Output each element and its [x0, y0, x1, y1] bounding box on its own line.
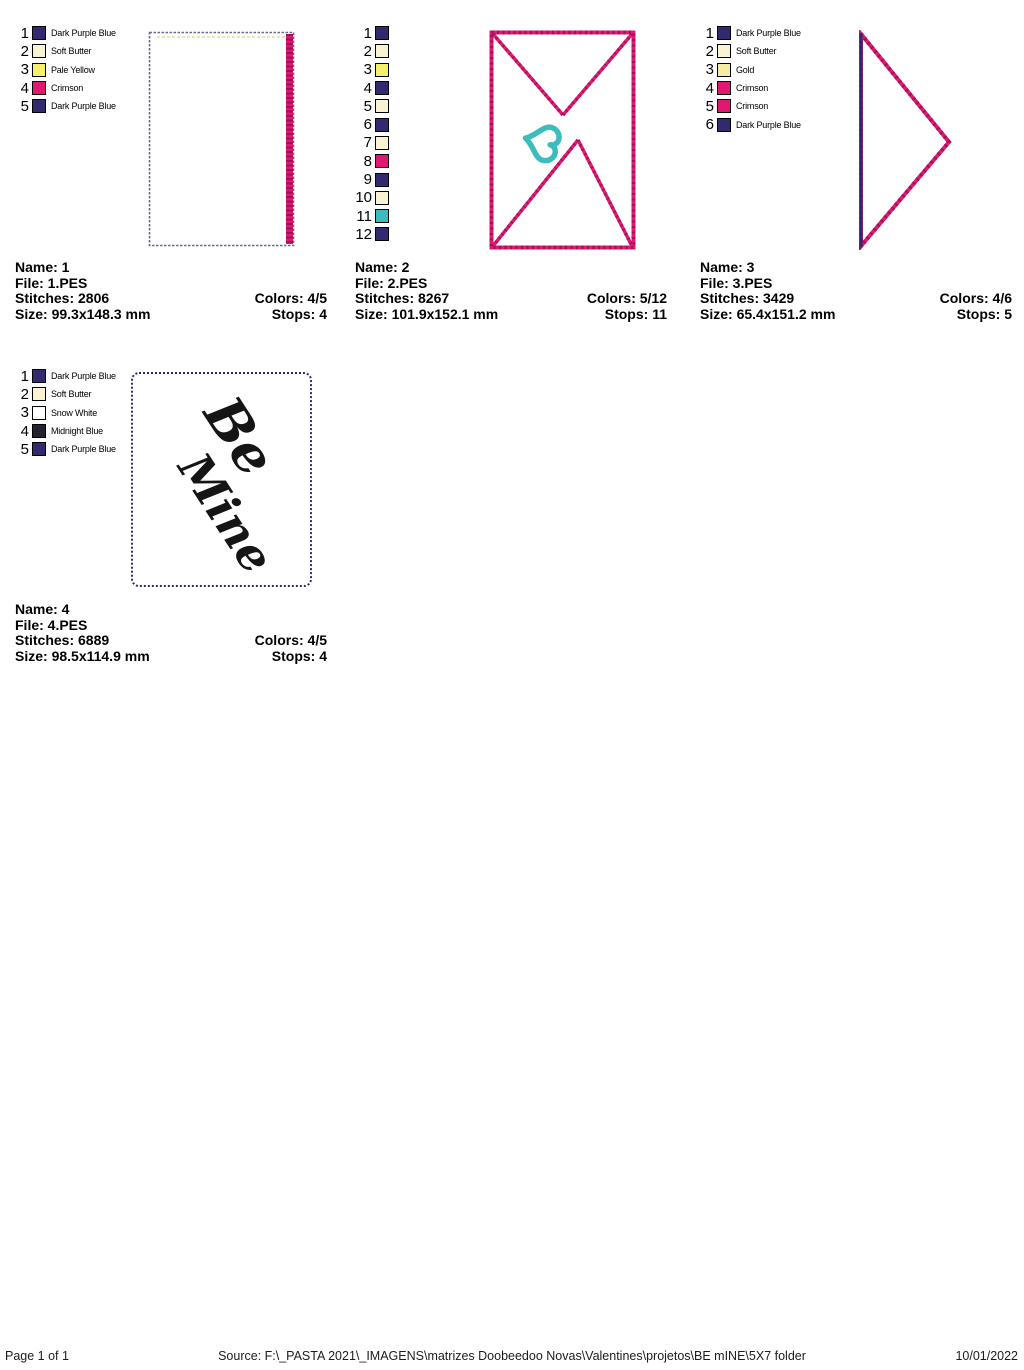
thread-number: 5: [12, 99, 29, 114]
thread-number: 9: [348, 172, 372, 187]
thread-number: 8: [348, 154, 372, 169]
catalog-sheet: 1 Dark Purple Blue 2 Soft Butter 3 Pale …: [0, 0, 1024, 1370]
thread-color-swatch: [32, 387, 46, 401]
design-colors: Colors: 4/5: [255, 633, 327, 649]
thread-color-swatch: [32, 26, 46, 40]
thread-row: 1 Dark Purple Blue: [697, 24, 801, 42]
thread-color-swatch: [375, 44, 389, 58]
thread-number: 4: [12, 81, 29, 96]
thread-color-name: Soft Butter: [51, 46, 91, 56]
thread-number: 2: [12, 44, 29, 59]
thread-row: 4 Midnight Blue: [12, 422, 116, 440]
design-stitches: Stitches: 6889: [15, 633, 109, 649]
thread-color-name: Dark Purple Blue: [51, 444, 116, 454]
thread-color-swatch: [717, 81, 731, 95]
envelope-outline-stitches: [492, 33, 634, 248]
thread-color-name: Dark Purple Blue: [736, 28, 801, 38]
design-1-preview: [148, 31, 296, 248]
thread-row: 4 Crimson: [12, 79, 116, 97]
thread-row: 5 Crimson: [697, 97, 801, 115]
thread-row: 1 Dark Purple Blue: [12, 367, 116, 385]
thread-number: 3: [12, 405, 29, 420]
thread-number: 5: [348, 99, 372, 114]
design-stops: Stops: 4: [272, 649, 327, 665]
thread-color-name: Crimson: [736, 83, 768, 93]
thread-row: 4: [348, 79, 394, 97]
thread-color-swatch: [375, 63, 389, 77]
design-file: File: 1.PES: [15, 276, 327, 292]
thread-color-swatch: [375, 99, 389, 113]
thread-row: 4 Crimson: [697, 79, 801, 97]
design-stops: Stops: 5: [957, 307, 1012, 323]
design-file: File: 3.PES: [700, 276, 1012, 292]
thread-color-swatch: [375, 154, 389, 168]
design-2-info: Name: 2 File: 2.PES Stitches: 8267 Color…: [355, 260, 667, 323]
thread-number: 4: [697, 81, 714, 96]
thread-row: 9: [348, 170, 394, 188]
thread-row: 10: [348, 189, 394, 207]
thread-number: 12: [348, 227, 372, 242]
thread-number: 7: [348, 135, 372, 150]
design-3-thread-legend: 1 Dark Purple Blue 2 Soft Butter 3 Gold …: [697, 24, 801, 134]
thread-row: 3: [348, 61, 394, 79]
design-1-thread-legend: 1 Dark Purple Blue 2 Soft Butter 3 Pale …: [12, 24, 116, 115]
thread-number: 5: [12, 442, 29, 457]
thread-number: 2: [697, 44, 714, 59]
thread-row: 2 Soft Butter: [697, 42, 801, 60]
thread-number: 2: [12, 387, 29, 402]
source-path: Source: F:\_PASTA 2021\_IMAGENS\matrizes…: [0, 1349, 1024, 1363]
thread-color-swatch: [375, 26, 389, 40]
design-name: Name: 3: [700, 260, 1012, 276]
thread-number: 3: [697, 62, 714, 77]
thread-row: 3 Gold: [697, 61, 801, 79]
thread-number: 1: [12, 369, 29, 384]
thread-row: 5 Dark Purple Blue: [12, 97, 116, 115]
thread-row: 2 Soft Butter: [12, 385, 116, 403]
thread-color-swatch: [375, 118, 389, 132]
thread-number: 1: [12, 26, 29, 41]
design-colors: Colors: 4/5: [255, 291, 327, 307]
thread-number: 6: [697, 117, 714, 132]
thread-color-swatch: [717, 44, 731, 58]
thread-row: 3 Snow White: [12, 404, 116, 422]
thread-number: 3: [348, 62, 372, 77]
design-4-preview: Be Mine: [131, 372, 312, 587]
design-name: Name: 1: [15, 260, 327, 276]
thread-color-name: Soft Butter: [736, 46, 776, 56]
design-colors: Colors: 5/12: [587, 291, 667, 307]
thread-row: 1 Dark Purple Blue: [12, 24, 116, 42]
thread-color-name: Dark Purple Blue: [51, 371, 116, 381]
thread-color-name: Pale Yellow: [51, 65, 95, 75]
design-file: File: 2.PES: [355, 276, 667, 292]
thread-color-swatch: [375, 173, 389, 187]
thread-color-swatch: [375, 136, 389, 150]
thread-number: 1: [348, 26, 372, 41]
design-file: File: 4.PES: [15, 618, 327, 634]
thread-color-swatch: [32, 406, 46, 420]
design-4-info: Name: 4 File: 4.PES Stitches: 6889 Color…: [15, 602, 327, 665]
thread-row: 1: [348, 24, 394, 42]
thread-color-name: Soft Butter: [51, 389, 91, 399]
thread-row: 8: [348, 152, 394, 170]
design-1-info: Name: 1 File: 1.PES Stitches: 2806 Color…: [15, 260, 327, 323]
thread-row: 11: [348, 207, 394, 225]
flap-triangle-outline: [861, 34, 949, 246]
thread-number: 5: [697, 99, 714, 114]
thread-row: 6 Dark Purple Blue: [697, 115, 801, 133]
print-date: 10/01/2022: [955, 1349, 1018, 1363]
thread-color-swatch: [32, 424, 46, 438]
thread-row: 7: [348, 134, 394, 152]
thread-color-swatch: [32, 442, 46, 456]
thread-row: 5 Dark Purple Blue: [12, 440, 116, 458]
thread-color-name: Crimson: [51, 83, 83, 93]
thread-color-swatch: [32, 81, 46, 95]
thread-color-swatch: [32, 99, 46, 113]
design-name: Name: 2: [355, 260, 667, 276]
thread-color-swatch: [32, 63, 46, 77]
design-stitches: Stitches: 2806: [15, 291, 109, 307]
card-back-outline: [150, 33, 294, 246]
design-stitches: Stitches: 3429: [700, 291, 794, 307]
thread-row: 3 Pale Yellow: [12, 61, 116, 79]
heart-icon: [521, 122, 561, 163]
envelope-flaps: [493, 34, 632, 246]
thread-color-swatch: [717, 26, 731, 40]
thread-row: 12: [348, 225, 394, 243]
thread-color-swatch: [32, 369, 46, 383]
thread-color-name: Crimson: [736, 101, 768, 111]
thread-color-name: Dark Purple Blue: [736, 120, 801, 130]
thread-color-swatch: [717, 99, 731, 113]
design-3-preview: [853, 30, 957, 250]
thread-number: 6: [348, 117, 372, 132]
thread-number: 10: [348, 190, 372, 205]
thread-row: 6: [348, 115, 394, 133]
thread-color-swatch: [717, 118, 731, 132]
thread-color-name: Midnight Blue: [51, 426, 103, 436]
thread-color-name: Gold: [736, 65, 754, 75]
thread-color-name: Dark Purple Blue: [51, 28, 116, 38]
flap-triangle-stitches: [861, 34, 949, 246]
design-colors: Colors: 4/6: [940, 291, 1012, 307]
thread-row: 2: [348, 42, 394, 60]
thread-number: 4: [12, 424, 29, 439]
thread-number: 1: [697, 26, 714, 41]
design-name: Name: 4: [15, 602, 327, 618]
design-stops: Stops: 4: [272, 307, 327, 323]
design-2-preview: [489, 30, 637, 250]
design-size: Size: 98.5x114.9 mm: [15, 649, 150, 665]
design-3-info: Name: 3 File: 3.PES Stitches: 3429 Color…: [700, 260, 1012, 323]
thread-color-swatch: [32, 44, 46, 58]
design-size: Size: 65.4x151.2 mm: [700, 307, 835, 323]
thread-color-name: Snow White: [51, 408, 97, 418]
thread-number: 3: [12, 62, 29, 77]
envelope-outline: [492, 33, 634, 248]
thread-color-swatch: [375, 227, 389, 241]
thread-color-swatch: [375, 81, 389, 95]
thread-row: 2 Soft Butter: [12, 42, 116, 60]
thread-number: 2: [348, 44, 372, 59]
design-size: Size: 99.3x148.3 mm: [15, 307, 150, 323]
thread-color-swatch: [717, 63, 731, 77]
design-4-thread-legend: 1 Dark Purple Blue 2 Soft Butter 3 Snow …: [12, 367, 116, 458]
design-stops: Stops: 11: [605, 307, 667, 323]
design-2-thread-legend: 1 2 3 4 5 6 7 8 9: [348, 24, 394, 244]
thread-color-name: Dark Purple Blue: [51, 101, 116, 111]
thread-row: 5: [348, 97, 394, 115]
design-size: Size: 101.9x152.1 mm: [355, 307, 498, 323]
thread-color-swatch: [375, 209, 389, 223]
thread-number: 4: [348, 81, 372, 96]
thread-color-swatch: [375, 191, 389, 205]
design-stitches: Stitches: 8267: [355, 291, 449, 307]
thread-number: 11: [348, 209, 372, 224]
